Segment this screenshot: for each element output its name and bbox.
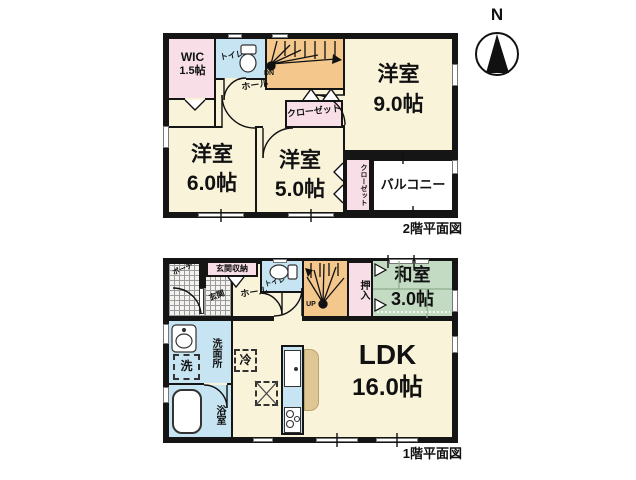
stove-burners-icon: [287, 411, 300, 428]
door-arcs: [222, 78, 345, 158]
sliding-door-icons: [375, 264, 386, 311]
folding-door-icons: [228, 277, 244, 287]
compass-north-label: N: [487, 6, 507, 24]
window-ticks: [337, 255, 414, 447]
washbasin-icon: [172, 325, 196, 352]
window-ticks: [221, 152, 413, 222]
stairs-down-icon: [267, 41, 342, 70]
compass-icon: [472, 28, 522, 80]
floor2-symbols: [163, 33, 458, 218]
floorplan-canvas: N WIC 1.5帖 トイレ ホール DN クローゼット クローゼット 洋室 9…: [0, 0, 636, 480]
floor2-caption: 2階平面図: [340, 222, 462, 236]
toilet-icon: [240, 45, 256, 72]
folding-door-icons: [185, 89, 343, 203]
stairs-up-icon: [305, 263, 344, 308]
floor1-caption: 1階平面図: [340, 447, 462, 461]
toilet-icon: [270, 265, 297, 279]
floor1-symbols: [163, 258, 458, 448]
dining-cross: [255, 381, 278, 406]
faucet-icon: [294, 367, 298, 371]
